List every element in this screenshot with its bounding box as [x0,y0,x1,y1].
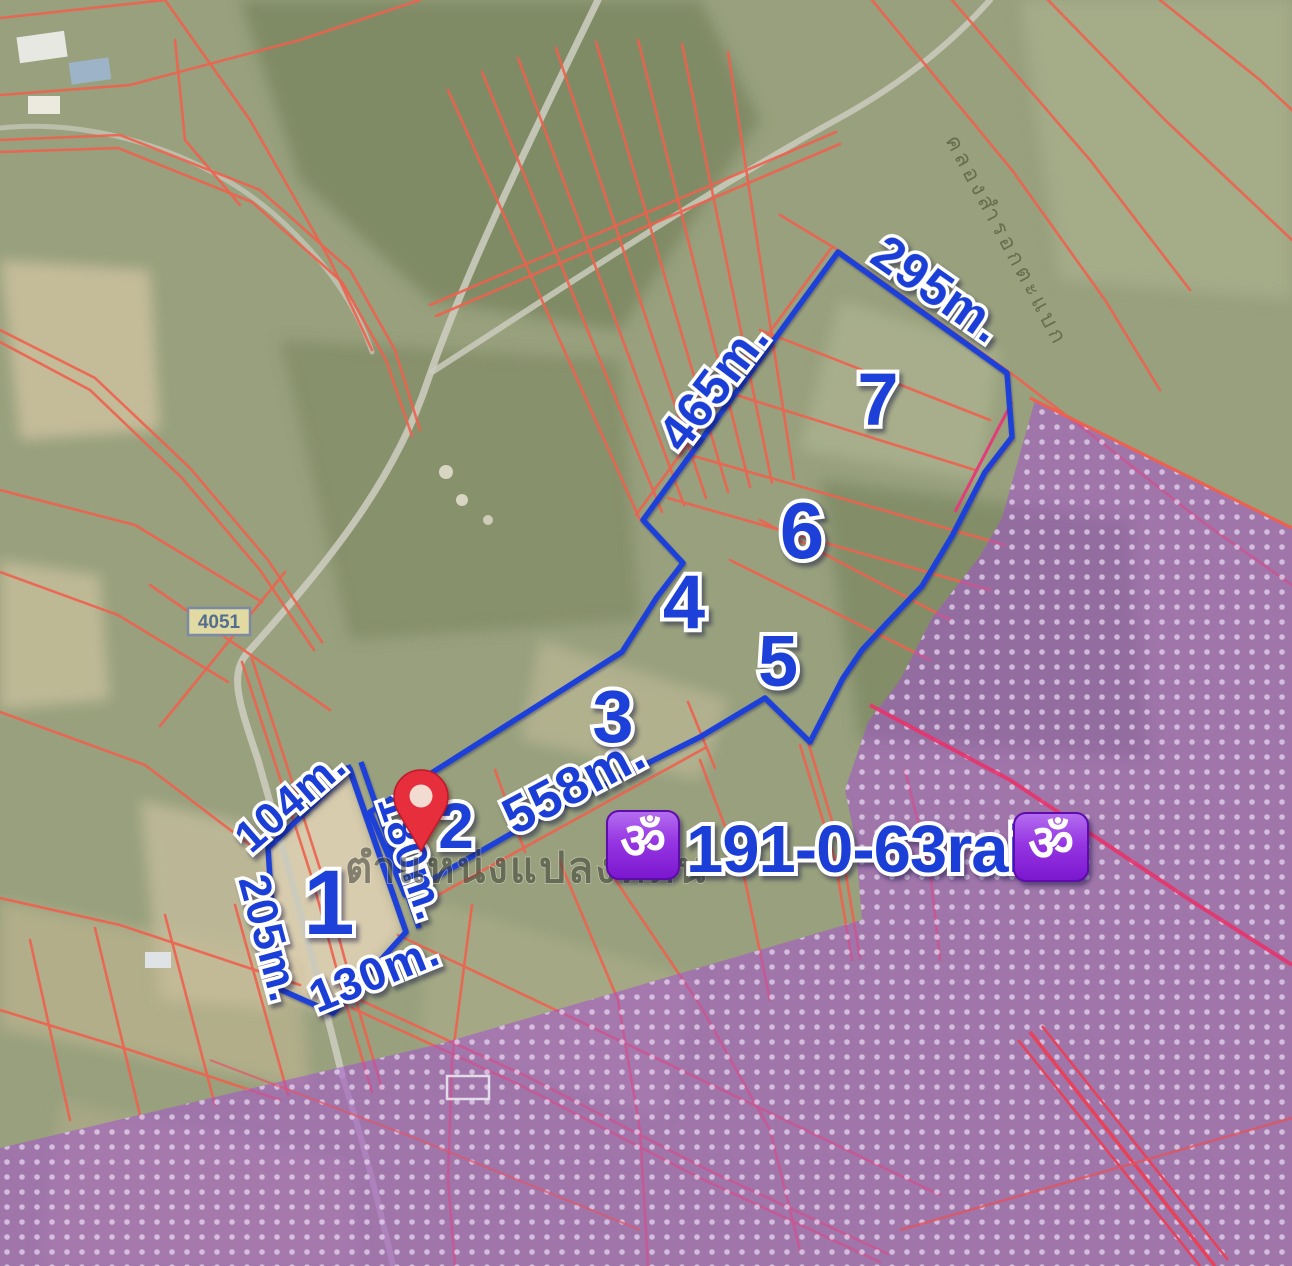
plot-7-label: 7 [857,358,898,441]
route-sign: 4051 [188,608,250,635]
om-icon: ॐ [1028,814,1074,872]
plot-6-label: 6 [780,486,825,575]
om-badge-left: ॐ [607,811,679,879]
plot-4-label: 4 [663,560,705,645]
plot-1-label: 1 [303,852,354,954]
om-badge-right: ॐ [1014,813,1088,881]
pin-hole [410,785,433,808]
route-sign-label: 4051 [198,612,241,633]
plot-3-label: 3 [592,675,633,758]
plot-5-label: 5 [758,622,798,702]
area-total-label: 191-0-63rai. [686,812,1043,887]
satellite-map-screenshot: คลองสำรอกตะแบก 4051 295m. 465m. 558m. 10… [0,0,1292,1266]
map-canvas[interactable]: คลองสำรอกตะแบก 4051 295m. 465m. 558m. 10… [0,0,1292,1266]
om-icon: ॐ [620,812,666,870]
